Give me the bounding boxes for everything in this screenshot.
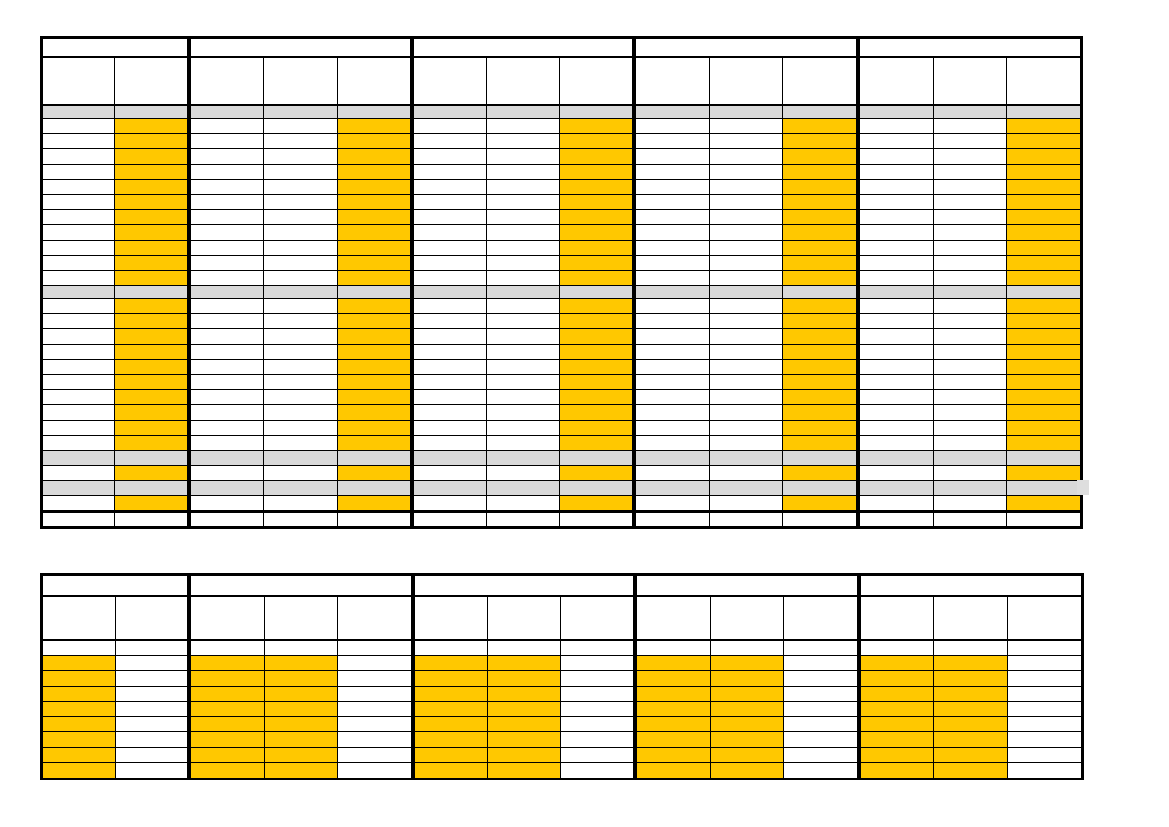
column-group-2 [191,481,414,495]
grid-cell [487,375,560,389]
column-group-3 [414,58,636,104]
grid-cell [860,299,934,313]
column-group-5 [860,513,1080,526]
separator-band-cell [783,106,855,118]
separator-band-cell [934,106,1008,118]
highlight-cell [488,702,561,716]
separator-band-cell [264,286,337,298]
column-group-1 [43,671,191,685]
grid-cell [934,405,1008,419]
highlight-cell [43,717,116,731]
grid-cell [636,180,709,194]
column-group-4 [636,58,859,104]
data-row [43,180,1080,195]
highlight-cell [338,329,410,343]
column-group-3 [414,225,636,239]
grid-cell [487,256,560,270]
grid-cell [561,687,633,701]
highlight-cell [1007,314,1080,328]
column-group-3 [415,763,638,778]
column-group-3 [414,299,636,313]
highlight-cell [338,195,410,209]
grid-cell [338,702,411,716]
grid-cell [1008,763,1081,778]
grid-cell [487,405,560,419]
grid-cell [860,119,934,133]
grid-cell [191,436,264,450]
highlight-cell [861,717,935,731]
grid-cell [414,299,487,313]
highlight-cell [191,656,265,670]
grid-cell [636,421,709,435]
group-header-cell [637,576,856,595]
highlight-cell [1007,421,1080,435]
column-group-4 [636,134,859,148]
grid-cell [191,390,264,404]
grid-cell [43,180,115,194]
highlight-cell [861,687,935,701]
highlight-cell [711,763,785,778]
column-group-2 [191,641,414,655]
grid-cell [784,732,857,746]
column-group-5 [860,225,1080,239]
highlight-cell [861,763,935,778]
highlight-cell [560,375,632,389]
grid-cell [414,513,487,526]
highlight-cell [560,256,632,270]
highlight-cell [415,656,488,670]
column-group-5 [860,106,1080,118]
grid-cell [636,466,709,480]
separator-band-cell [264,481,337,495]
separator-band-cell [934,451,1008,465]
grid-cell [860,329,934,343]
separator-band-cell [191,286,264,298]
highlight-cell [783,119,855,133]
column-group-4 [636,345,859,359]
grid-cell [860,345,934,359]
column-group-4 [636,360,859,374]
grid-cell [414,134,487,148]
grid-cell [934,329,1008,343]
column-group-3 [414,466,636,480]
column-group-4 [636,496,859,510]
highlight-cell [338,496,410,510]
data-row [43,513,1080,526]
grid-cell [414,256,487,270]
column-group-4 [636,375,859,389]
grid-cell [264,405,337,419]
data-row [43,671,1081,686]
separator-band-cell [860,481,934,495]
grid-cell [414,314,487,328]
grid-cell [191,256,264,270]
column-group-2 [191,390,414,404]
highlight-cell [560,180,632,194]
data-row [43,375,1080,390]
grid-cell [414,496,487,510]
column-group-5 [860,314,1080,328]
separator-band-cell [115,106,186,118]
column-group-1 [43,180,191,194]
grid-cell [710,180,783,194]
column-group-5 [861,656,1081,670]
highlight-cell [783,210,855,224]
column-group-5 [860,241,1080,255]
grid-cell [561,656,633,670]
data-row [43,119,1080,134]
column-group-5 [860,58,1080,104]
column-group-4 [636,390,859,404]
grid-cell [860,241,934,255]
column-group-3 [414,119,636,133]
highlight-cell [43,656,116,670]
grid-cell [414,165,487,179]
highlight-cell [191,717,265,731]
column-group-5 [860,299,1080,313]
separator-band-cell [860,286,934,298]
grid-cell [414,390,487,404]
column-group-3 [414,149,636,163]
grid-cell [191,299,264,313]
highlight-cell [338,390,410,404]
column-group-4 [636,225,859,239]
grid-cell [191,513,264,526]
highlight-cell [783,360,855,374]
grid-cell [487,390,560,404]
column-group-2 [191,58,414,104]
grid-cell [860,165,934,179]
column-group-5 [860,451,1080,465]
group-header-cell [860,39,1080,56]
column-group-2 [191,149,414,163]
grid-cell [710,314,783,328]
column-group-1 [43,390,191,404]
highlight-cell [783,329,855,343]
highlight-cell [338,225,410,239]
data-row [43,256,1080,271]
grid-cell [710,299,783,313]
highlight-cell [560,466,632,480]
grid-cell [414,345,487,359]
grid-cell [264,496,337,510]
separator-band-cell [264,451,337,465]
grid-cell [860,496,934,510]
grid-cell [561,641,633,655]
column-group-1 [43,314,191,328]
grid-cell [636,436,709,450]
data-row [43,360,1080,375]
grid-cell [860,180,934,194]
column-group-3 [414,210,636,224]
grid-cell [710,390,783,404]
column-group-2 [191,210,414,224]
header-cell [191,58,264,104]
highlight-cell [934,702,1008,716]
column-group-4 [636,481,859,495]
highlight-cell [115,271,186,285]
separator-band-cell [414,286,487,298]
column-group-3 [415,732,638,746]
group-band-row [43,576,1081,597]
grid-cell [264,513,337,526]
highlight-cell [415,702,488,716]
grid-cell [191,180,264,194]
highlight-cell [115,360,186,374]
grid-cell [934,375,1008,389]
data-row [43,496,1080,513]
column-group-2 [191,597,414,639]
highlight-cell [415,717,488,731]
column-group-3 [414,241,636,255]
header-row [43,597,1081,641]
grid-cell [43,314,115,328]
grid-cell [934,149,1008,163]
highlight-cell [338,180,410,194]
separator-band-cell [115,481,186,495]
column-group-5 [860,134,1080,148]
column-group-2 [191,671,414,685]
highlight-cell [191,763,265,778]
highlight-cell [560,119,632,133]
separator-band-cell [338,451,410,465]
grid-cell [191,241,264,255]
highlight-cell [488,656,561,670]
highlight-cell [1007,165,1080,179]
highlight-cell [338,165,410,179]
data-row [43,329,1080,344]
highlight-cell [1007,360,1080,374]
separator-band-cell [783,481,855,495]
separator-band-cell [191,106,264,118]
column-group-3 [414,286,636,298]
grid-cell [636,241,709,255]
grid-cell [487,195,560,209]
highlight-cell [338,314,410,328]
grid-cell [414,329,487,343]
grid-cell [636,195,709,209]
column-group-5 [861,748,1081,762]
column-group-4 [636,436,859,450]
column-group-1 [43,360,191,374]
highlight-cell [488,748,561,762]
grid-cell [43,496,115,510]
grid-cell [487,436,560,450]
column-group-5 [860,496,1080,510]
header-cell [711,597,785,639]
separator-band-cell [1007,481,1080,495]
column-group-1 [43,256,191,270]
column-group-1 [43,466,191,480]
grid-cell [487,119,560,133]
header-cell [116,597,188,639]
highlight-cell [711,732,785,746]
column-group-3 [414,451,636,465]
column-group-5 [860,39,1080,56]
highlight-cell [191,702,265,716]
highlight-cell [115,496,186,510]
highlight-cell [637,656,711,670]
grid-cell [43,210,115,224]
grid-cell [710,271,783,285]
highlight-cell [115,390,186,404]
highlight-cell [338,241,410,255]
highlight-cell [191,687,265,701]
grid-cell [934,436,1008,450]
column-group-1 [43,481,191,495]
grid-cell [191,149,264,163]
grid-cell [191,345,264,359]
group-header-cell [43,576,187,595]
highlight-cell [783,271,855,285]
grid-cell [783,513,855,526]
highlight-cell [783,405,855,419]
grid-cell [415,641,488,655]
column-group-3 [414,195,636,209]
grid-cell [710,119,783,133]
column-group-4 [636,271,859,285]
separator-band-cell [710,106,783,118]
column-group-4 [637,717,860,731]
grid-cell [414,210,487,224]
highlight-cell [560,390,632,404]
highlight-cell [43,748,116,762]
column-group-1 [43,576,191,595]
grid-cell [414,195,487,209]
grid-cell [636,314,709,328]
highlight-cell [783,149,855,163]
column-group-1 [43,763,191,778]
grid-cell [784,717,857,731]
highlight-cell [265,656,339,670]
highlight-cell [191,671,265,685]
highlight-cell [637,687,711,701]
grid-cell [414,405,487,419]
highlight-cell [560,299,632,313]
column-group-4 [636,119,859,133]
data-row [43,314,1080,329]
highlight-cell [861,732,935,746]
column-group-1 [43,702,191,716]
column-group-5 [860,180,1080,194]
column-group-5 [860,375,1080,389]
highlight-cell [1007,375,1080,389]
highlight-cell [637,763,711,778]
grid-cell [636,256,709,270]
highlight-cell [1007,134,1080,148]
separator-band-cell [1007,106,1080,118]
highlight-cell [783,421,855,435]
data-row [43,390,1080,405]
column-group-4 [636,210,859,224]
grid-cell [264,466,337,480]
highlight-cell [1007,195,1080,209]
page [0,0,1169,827]
header-cell [784,597,857,639]
column-group-2 [191,576,414,595]
data-row [43,149,1080,164]
column-group-5 [860,421,1080,435]
grid-cell [710,360,783,374]
separator-band-cell [414,106,487,118]
grid-cell [1008,717,1081,731]
column-group-2 [191,271,414,285]
data-row [43,345,1080,360]
highlight-cell [338,134,410,148]
column-group-1 [43,375,191,389]
grid-cell [414,436,487,450]
grid-cell [487,210,560,224]
highlight-cell [934,687,1008,701]
header-cell [561,597,633,639]
grid-cell [487,360,560,374]
highlight-cell [560,421,632,435]
column-group-4 [636,256,859,270]
column-group-2 [191,436,414,450]
grid-cell [487,134,560,148]
highlight-cell [415,732,488,746]
grid-cell [710,134,783,148]
grid-cell [488,641,561,655]
grid-cell [784,656,857,670]
header-cell [488,597,561,639]
highlight-cell [560,241,632,255]
grid-cell [264,299,337,313]
column-group-5 [861,732,1081,746]
grid-cell [116,687,188,701]
highlight-cell [1007,390,1080,404]
grid-cell [784,748,857,762]
highlight-cell [115,134,186,148]
highlight-cell [115,195,186,209]
grid-cell [934,225,1008,239]
column-group-2 [191,496,414,510]
grid-cell [191,165,264,179]
column-group-4 [636,329,859,343]
grid-cell [860,436,934,450]
highlight-cell [488,671,561,685]
separator-band-cell [487,106,560,118]
grid-cell [191,210,264,224]
data-row [43,732,1081,747]
grid-cell [1007,513,1080,526]
separator-band-row [43,106,1080,119]
highlight-cell [560,149,632,163]
grid-cell [636,405,709,419]
grid-cell [43,375,115,389]
grid-cell [191,271,264,285]
column-group-2 [191,466,414,480]
column-group-4 [636,513,859,526]
column-group-1 [43,717,191,731]
grid-cell [414,271,487,285]
grid-cell [784,702,857,716]
highlight-cell [338,149,410,163]
highlight-cell [338,405,410,419]
grid-cell [860,390,934,404]
column-group-2 [191,375,414,389]
highlight-cell [338,271,410,285]
column-group-3 [414,39,636,56]
column-group-4 [636,106,859,118]
highlight-cell [560,271,632,285]
highlight-cell [1007,225,1080,239]
column-group-3 [414,436,636,450]
separator-band-cell [860,106,934,118]
grid-cell [414,360,487,374]
highlight-cell [1007,271,1080,285]
column-group-3 [415,687,638,701]
